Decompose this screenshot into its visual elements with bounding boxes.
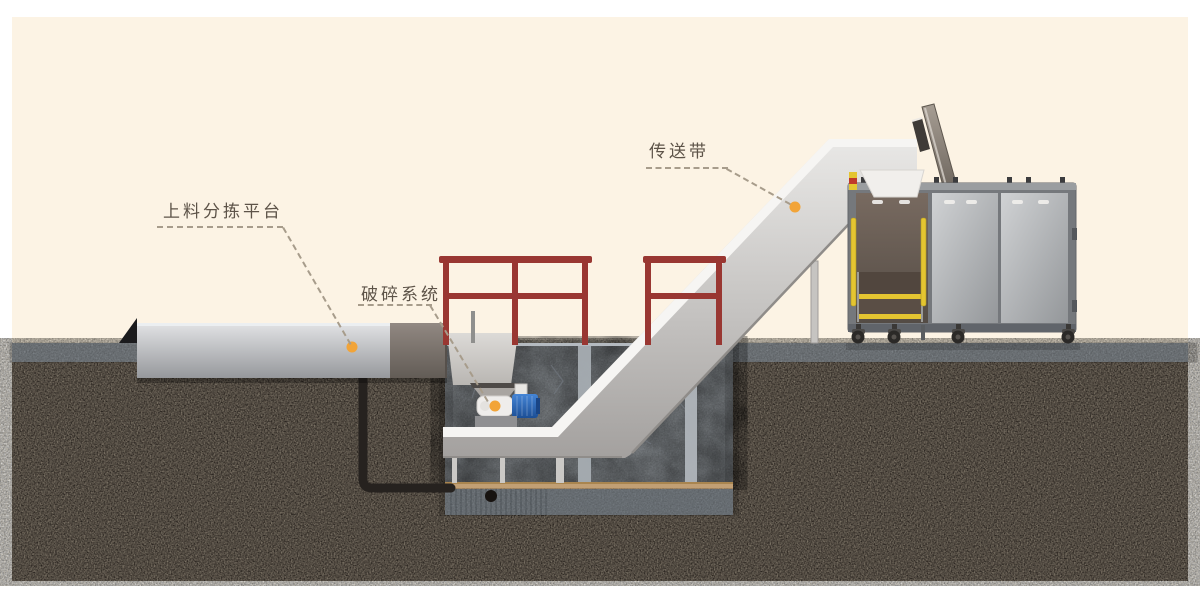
infographic-canvas: 上料分拣平台 破碎系统 传送带 (0, 0, 1200, 596)
label-crushing-system: 破碎系统 (361, 285, 441, 305)
handrail (921, 218, 926, 306)
machine-door-right (1001, 193, 1068, 323)
marker-dot-conveyor-belt (790, 202, 801, 213)
crusher-motor (512, 394, 538, 418)
leader-line-crushing-system (358, 304, 432, 306)
motor-junction-box (515, 384, 527, 395)
conveyor-leg (556, 458, 564, 483)
platform-shadow (137, 378, 447, 383)
pit-drain (485, 490, 497, 502)
machine-door-middle (932, 193, 998, 323)
leader-line-conveyor-belt (646, 167, 728, 169)
discharge-chute (447, 333, 518, 385)
loading-sorting-platform (119, 318, 447, 378)
handrail (851, 218, 856, 306)
scene-illustration (0, 0, 1200, 596)
marker-dot-crushing-system (490, 401, 501, 412)
processing-machine (848, 172, 1077, 344)
pipe-stub (471, 311, 475, 343)
conveyor-leg (500, 458, 505, 483)
leader-line-loading-platform (157, 226, 283, 228)
label-conveyor-belt: 传送带 (649, 142, 709, 162)
ground-slab-left (12, 343, 137, 362)
conveyor-leg (452, 458, 457, 483)
machine-shadow (846, 343, 1080, 350)
safety-stripe-marker (849, 172, 857, 190)
conveyor-support-post (811, 261, 818, 343)
platform-right-section (390, 323, 447, 378)
label-loading-platform: 上料分拣平台 (163, 202, 283, 222)
